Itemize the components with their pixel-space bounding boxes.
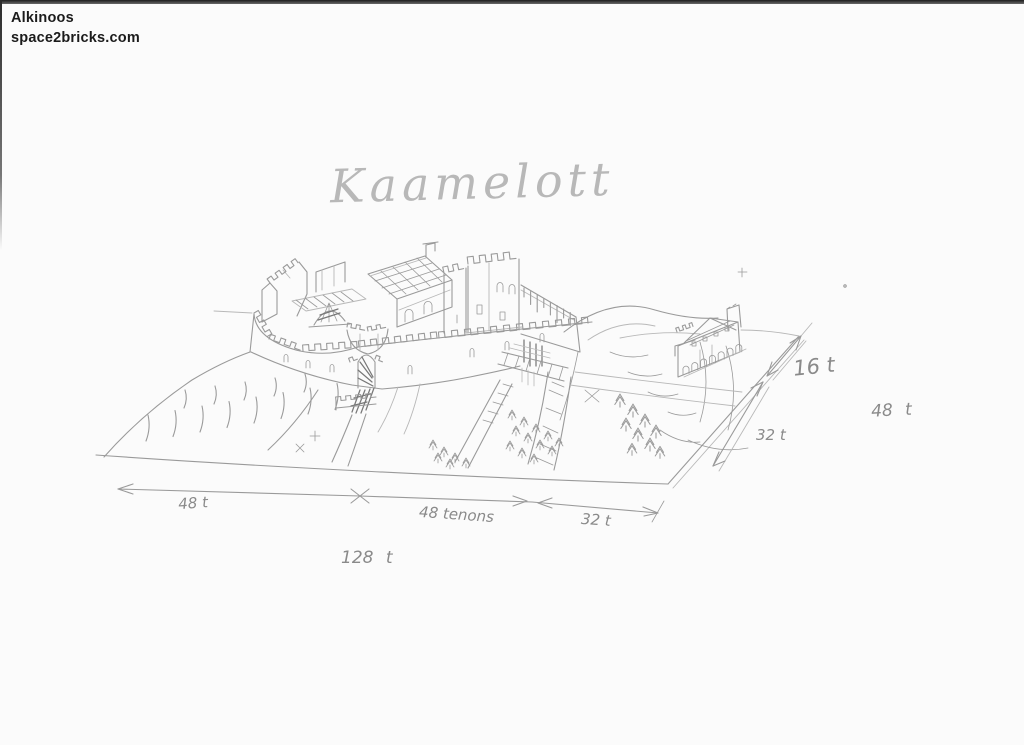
label-width-right: 32 t [580, 510, 612, 530]
tree-lined-road [378, 380, 513, 468]
keep [444, 259, 522, 333]
left-hill [268, 390, 366, 466]
courtyard [292, 262, 366, 327]
label-depth-back: 16 t [792, 352, 837, 380]
castle-pencil-sketch: Kaamelott [0, 0, 1024, 745]
label-depth-front: 32 t [756, 426, 787, 444]
east-wall-and-bridge [498, 285, 580, 381]
moat-gorge [522, 368, 571, 470]
roofed-hall [368, 242, 452, 327]
label-width-middle: 48 tenons [419, 503, 495, 526]
wall-sketch-strokes [524, 288, 570, 326]
slope-hatching [146, 374, 338, 441]
abbey-building [675, 268, 747, 377]
label-width-left: 48 t [178, 493, 210, 513]
sketch-title: Kaamelott [328, 152, 615, 213]
label-width-total: 128 t [341, 548, 394, 568]
fir-trees [429, 394, 665, 469]
scanned-sketch-page: Alkinoos space2bricks.com Kaamelott [0, 0, 1024, 745]
label-depth-total: 48 t [871, 400, 914, 422]
back-left-wall [262, 262, 307, 322]
dimension-lines [118, 285, 846, 522]
